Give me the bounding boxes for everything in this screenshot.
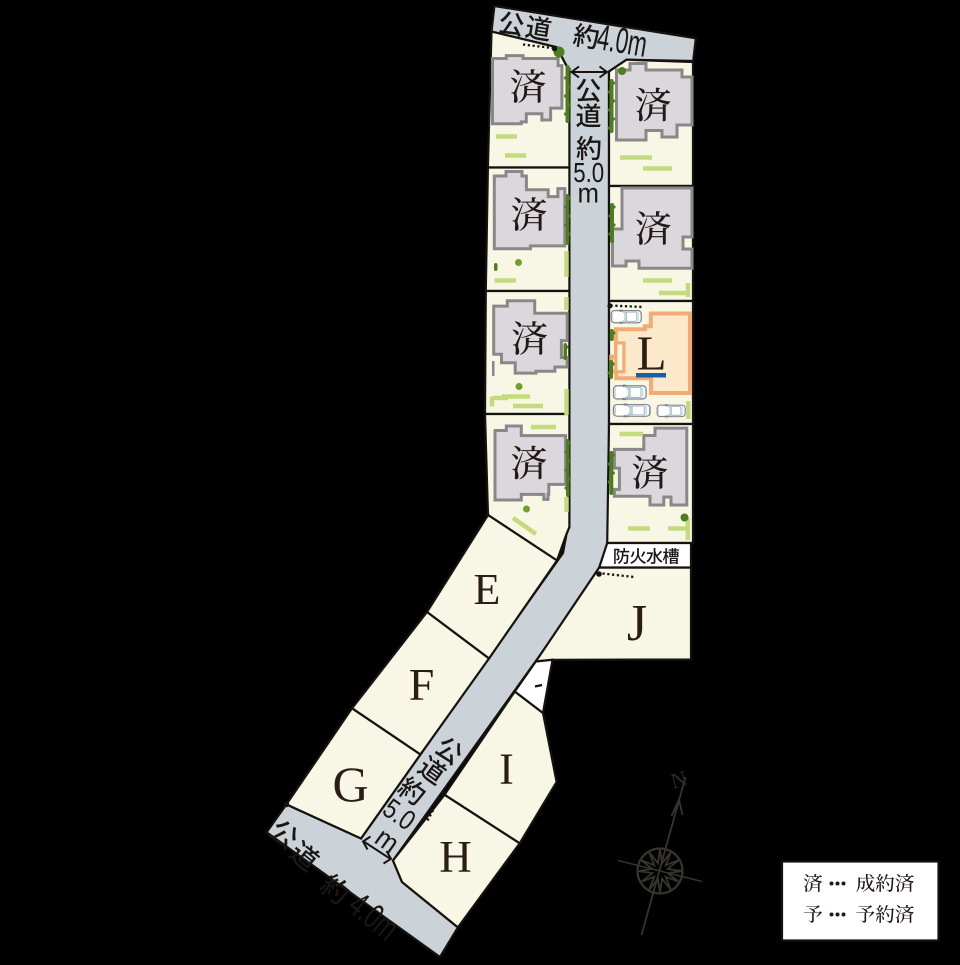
svg-text:L: L <box>637 326 667 381</box>
svg-text:G: G <box>332 756 368 812</box>
svg-text:J: J <box>627 595 647 652</box>
svg-text:I: I <box>499 745 514 794</box>
svg-text:4.0m: 4.0m <box>594 16 650 65</box>
svg-text:m: m <box>578 178 600 209</box>
svg-text:F: F <box>409 659 435 710</box>
svg-text:H: H <box>439 832 472 882</box>
svg-text:E: E <box>474 565 501 614</box>
